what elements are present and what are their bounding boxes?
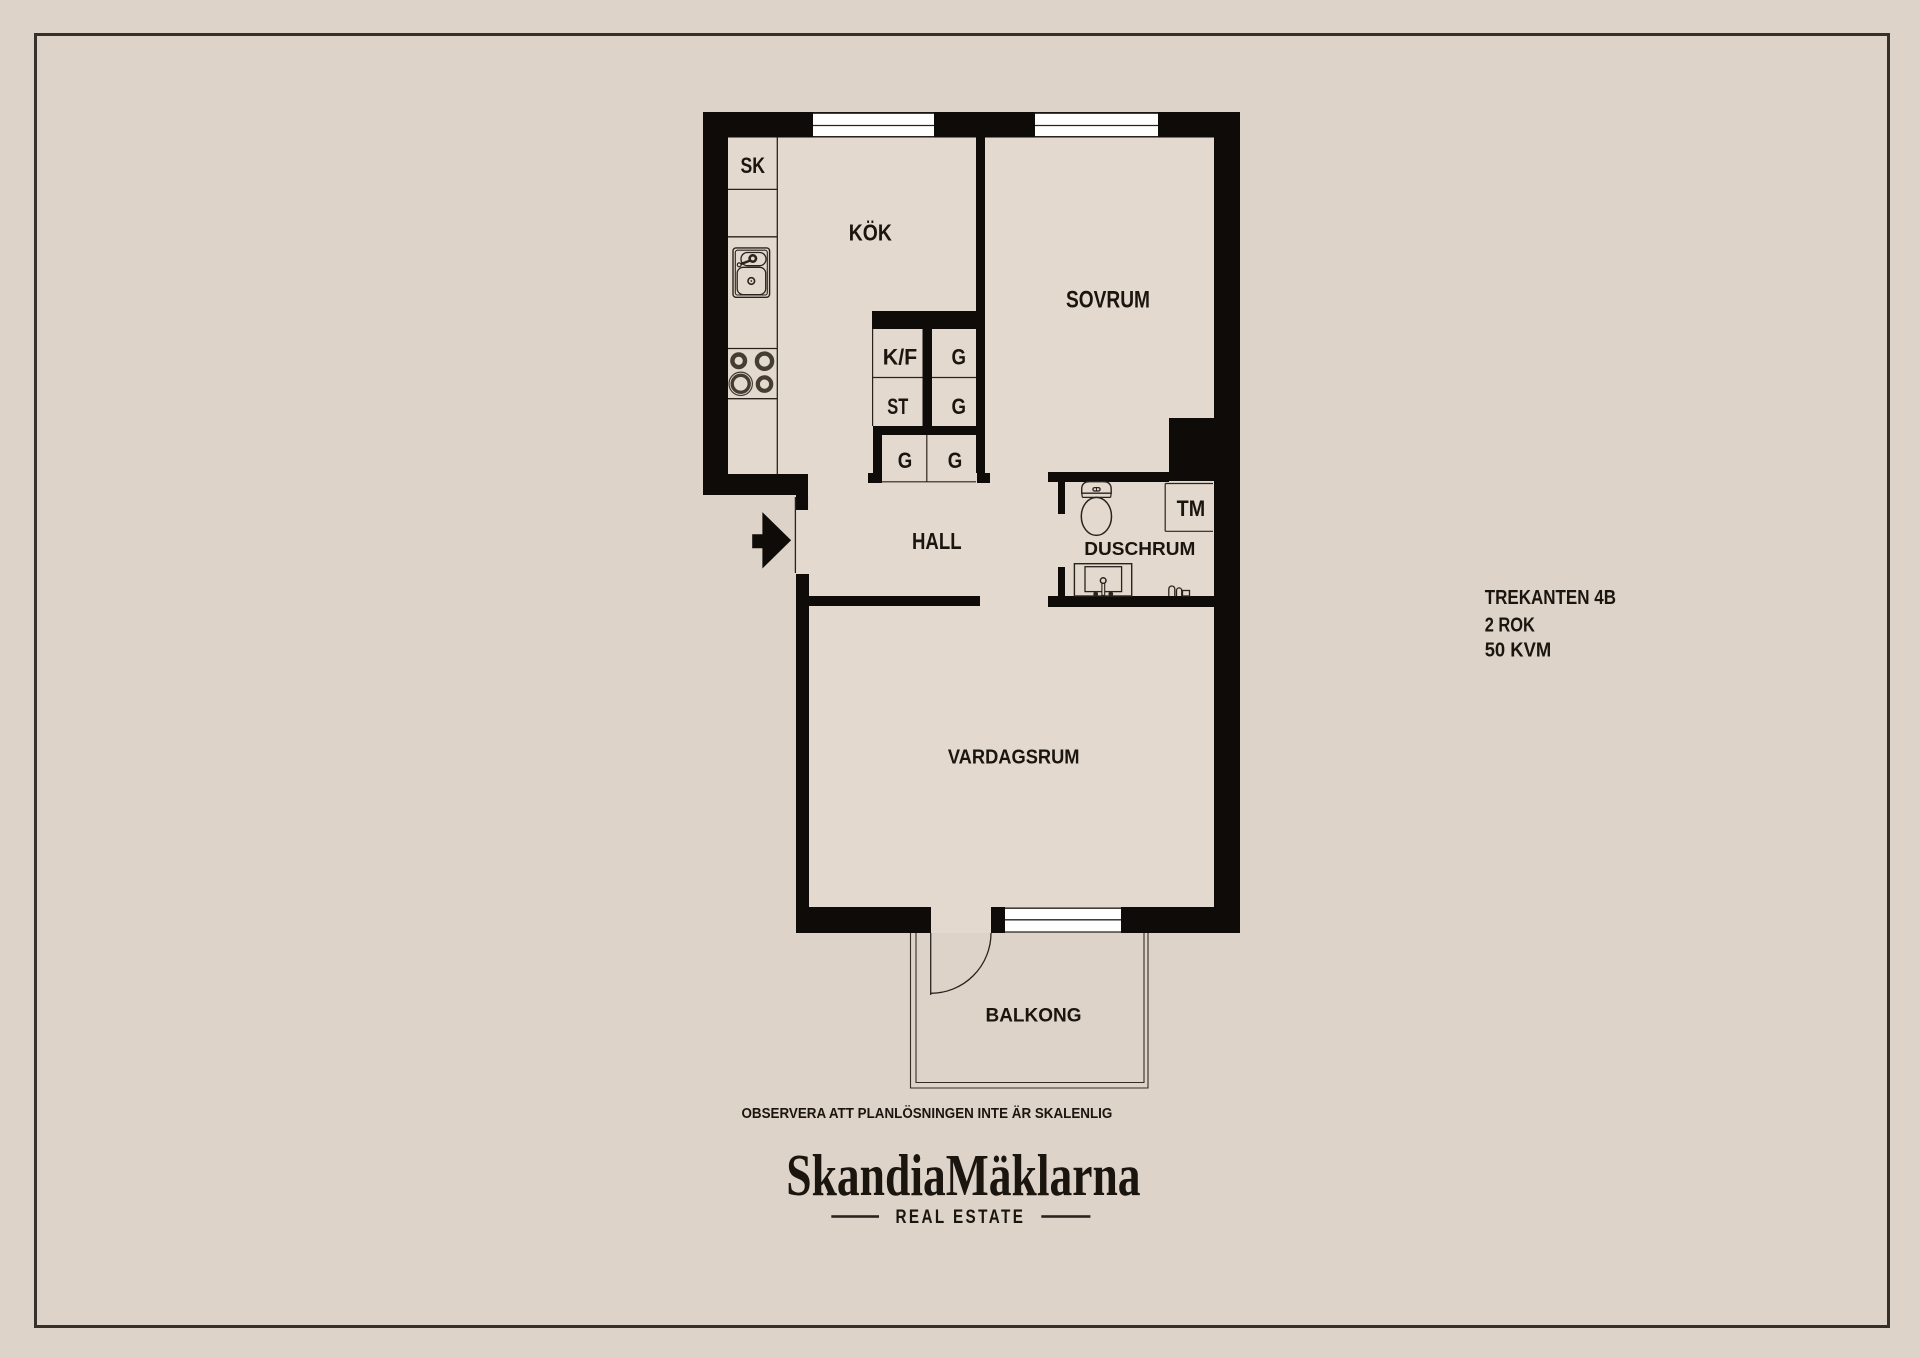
svg-text:TM: TM [1177,496,1206,521]
svg-text:G: G [952,394,967,419]
svg-text:G: G [898,448,913,473]
svg-text:VARDAGSRUM: VARDAGSRUM [948,745,1080,768]
svg-text:TREKANTEN 4B: TREKANTEN 4B [1485,586,1616,609]
svg-text:HALL: HALL [912,528,962,554]
svg-text:SK: SK [741,153,766,178]
svg-text:2 ROK: 2 ROK [1485,614,1535,637]
svg-text:DUSCHRUM: DUSCHRUM [1084,539,1195,559]
svg-text:SOVRUM: SOVRUM [1066,287,1150,314]
svg-text:G: G [952,345,967,370]
svg-text:ST: ST [887,394,908,419]
svg-text:K/F: K/F [883,345,918,370]
svg-text:50 KVM: 50 KVM [1485,639,1552,662]
svg-text:G: G [948,448,963,473]
svg-text:SkandiaMäklarna: SkandiaMäklarna [786,1142,1140,1208]
svg-text:OBSERVERA ATT PLANLÖSNINGEN IN: OBSERVERA ATT PLANLÖSNINGEN INTE ÄR SKAL… [742,1105,1113,1122]
svg-text:KÖK: KÖK [849,219,892,245]
svg-text:REAL ESTATE: REAL ESTATE [895,1207,1025,1228]
svg-text:BALKONG: BALKONG [986,1004,1082,1026]
